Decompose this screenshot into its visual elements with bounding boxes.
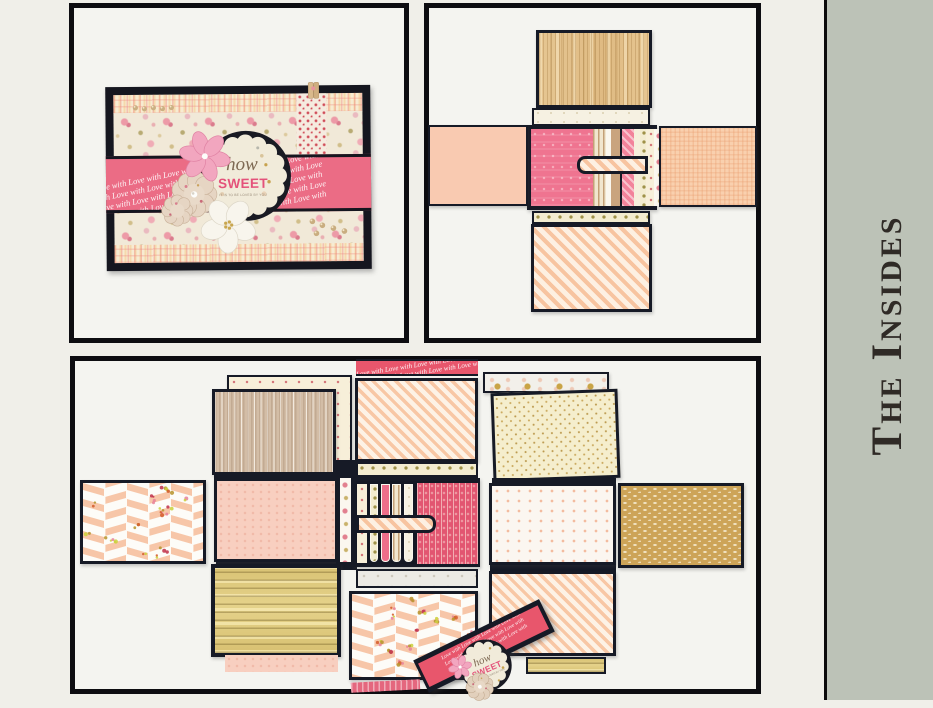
svg-text:SWEET: SWEET [218,176,268,191]
svg-text:IT IS TO BE LOVED BY YOU: IT IS TO BE LOVED BY YOU [219,193,267,197]
svg-text:how: how [226,154,258,175]
